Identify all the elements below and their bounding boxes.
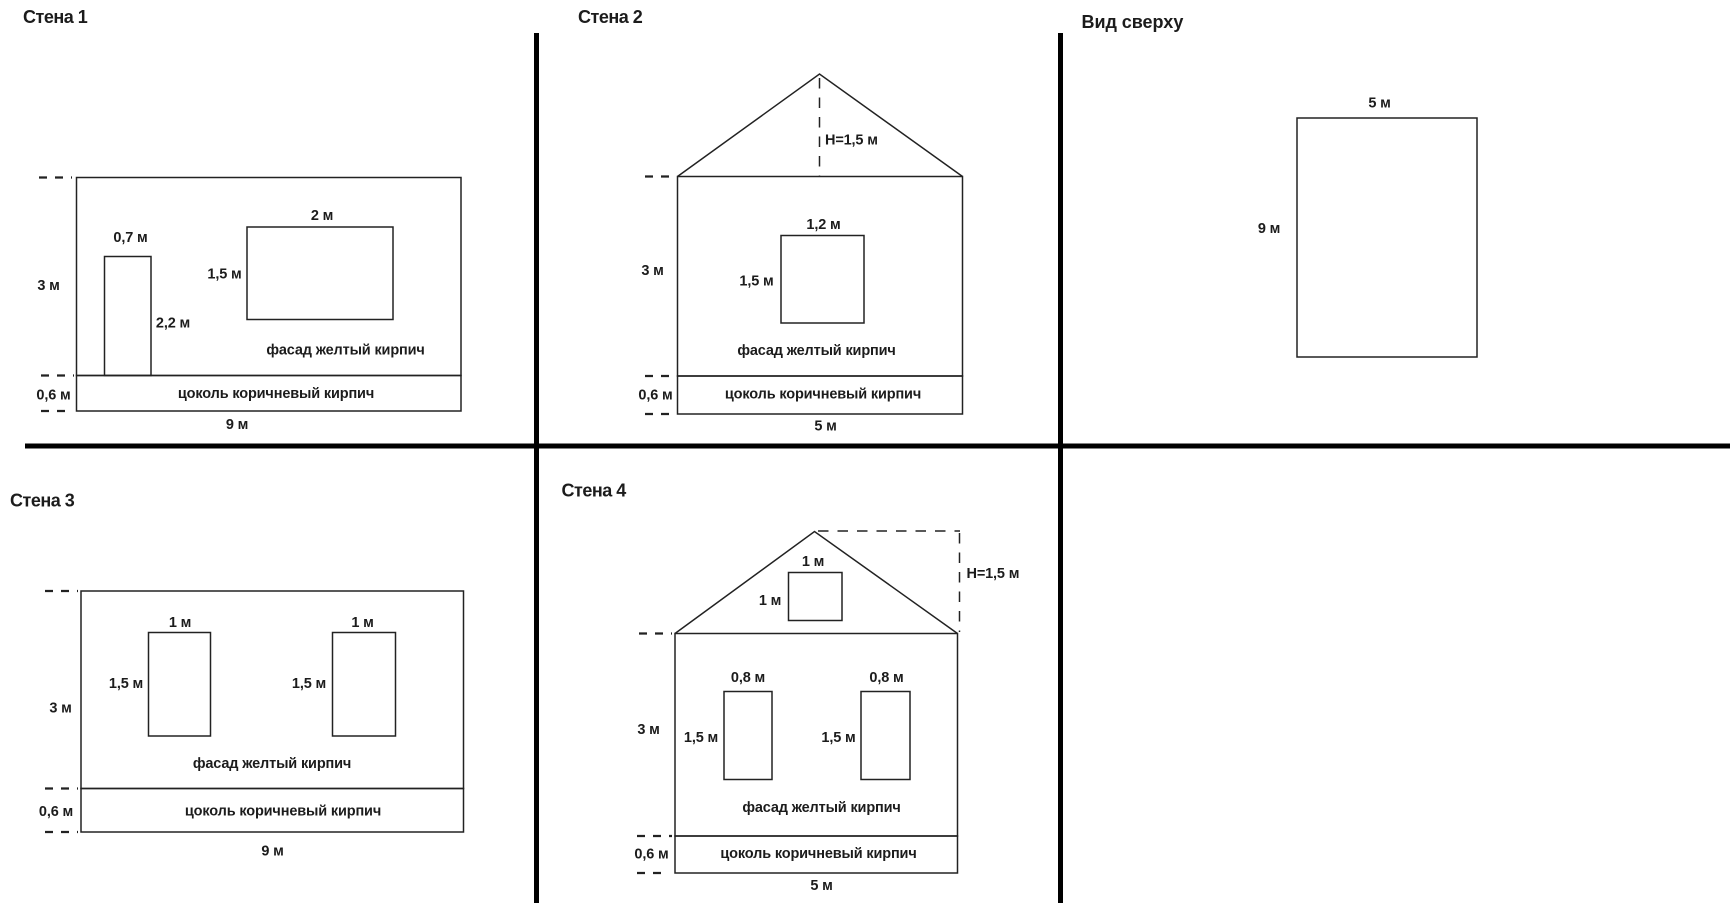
svg-text:0,7 м: 0,7 м (113, 230, 147, 246)
svg-text:Стена 2: Стена 2 (578, 7, 643, 27)
svg-text:цоколь коричневый кирпич: цоколь коричневый кирпич (178, 386, 374, 402)
svg-text:9 м: 9 м (226, 417, 248, 433)
svg-text:фасад желтый кирпич: фасад желтый кирпич (193, 756, 351, 772)
svg-text:1,5 м: 1,5 м (739, 274, 773, 290)
svg-text:фасад желтый кирпич: фасад желтый кирпич (266, 343, 424, 359)
svg-text:5 м: 5 м (1368, 96, 1390, 112)
svg-text:1,5 м: 1,5 м (109, 676, 143, 692)
svg-text:Н=1,5 м: Н=1,5 м (825, 133, 878, 149)
svg-text:0,6 м: 0,6 м (638, 388, 672, 404)
svg-text:цоколь коричневый кирпич: цоколь коричневый кирпич (720, 846, 916, 862)
svg-text:0,6 м: 0,6 м (39, 804, 73, 820)
svg-text:5 м: 5 м (810, 878, 832, 894)
svg-text:1,5 м: 1,5 м (292, 676, 326, 692)
svg-text:Стена 1: Стена 1 (23, 7, 88, 27)
svg-text:0,6 м: 0,6 м (36, 388, 70, 404)
svg-text:9 м: 9 м (1258, 221, 1280, 237)
svg-text:5 м: 5 м (814, 419, 836, 435)
svg-text:1 м: 1 м (802, 554, 824, 570)
svg-text:1,5 м: 1,5 м (821, 730, 855, 746)
svg-text:Стена 4: Стена 4 (562, 481, 627, 501)
svg-text:Вид сверху: Вид сверху (1082, 12, 1184, 32)
svg-text:2 м: 2 м (311, 208, 333, 224)
svg-text:3 м: 3 м (37, 278, 59, 294)
svg-text:1 м: 1 м (169, 615, 191, 631)
svg-text:1,2 м: 1,2 м (806, 217, 840, 233)
svg-text:Стена 3: Стена 3 (10, 491, 75, 511)
svg-text:1 м: 1 м (351, 615, 373, 631)
svg-text:3 м: 3 м (637, 722, 659, 738)
svg-text:9 м: 9 м (261, 844, 283, 860)
svg-text:цоколь коричневый кирпич: цоколь коричневый кирпич (725, 387, 921, 403)
svg-text:1,5 м: 1,5 м (684, 730, 718, 746)
svg-text:2,2 м: 2,2 м (156, 316, 190, 332)
svg-text:3 м: 3 м (49, 701, 71, 717)
svg-text:Н=1,5 м: Н=1,5 м (967, 566, 1020, 582)
svg-text:1,5 м: 1,5 м (207, 267, 241, 283)
svg-text:фасад желтый кирпич: фасад желтый кирпич (737, 343, 895, 359)
svg-text:0,8 м: 0,8 м (869, 670, 903, 686)
svg-text:0,8 м: 0,8 м (731, 670, 765, 686)
svg-text:цоколь коричневый кирпич: цоколь коричневый кирпич (185, 804, 381, 820)
svg-text:1 м: 1 м (759, 593, 781, 609)
svg-text:0,6 м: 0,6 м (634, 847, 668, 863)
svg-text:3 м: 3 м (641, 263, 663, 279)
svg-text:фасад желтый кирпич: фасад желтый кирпич (742, 800, 900, 816)
